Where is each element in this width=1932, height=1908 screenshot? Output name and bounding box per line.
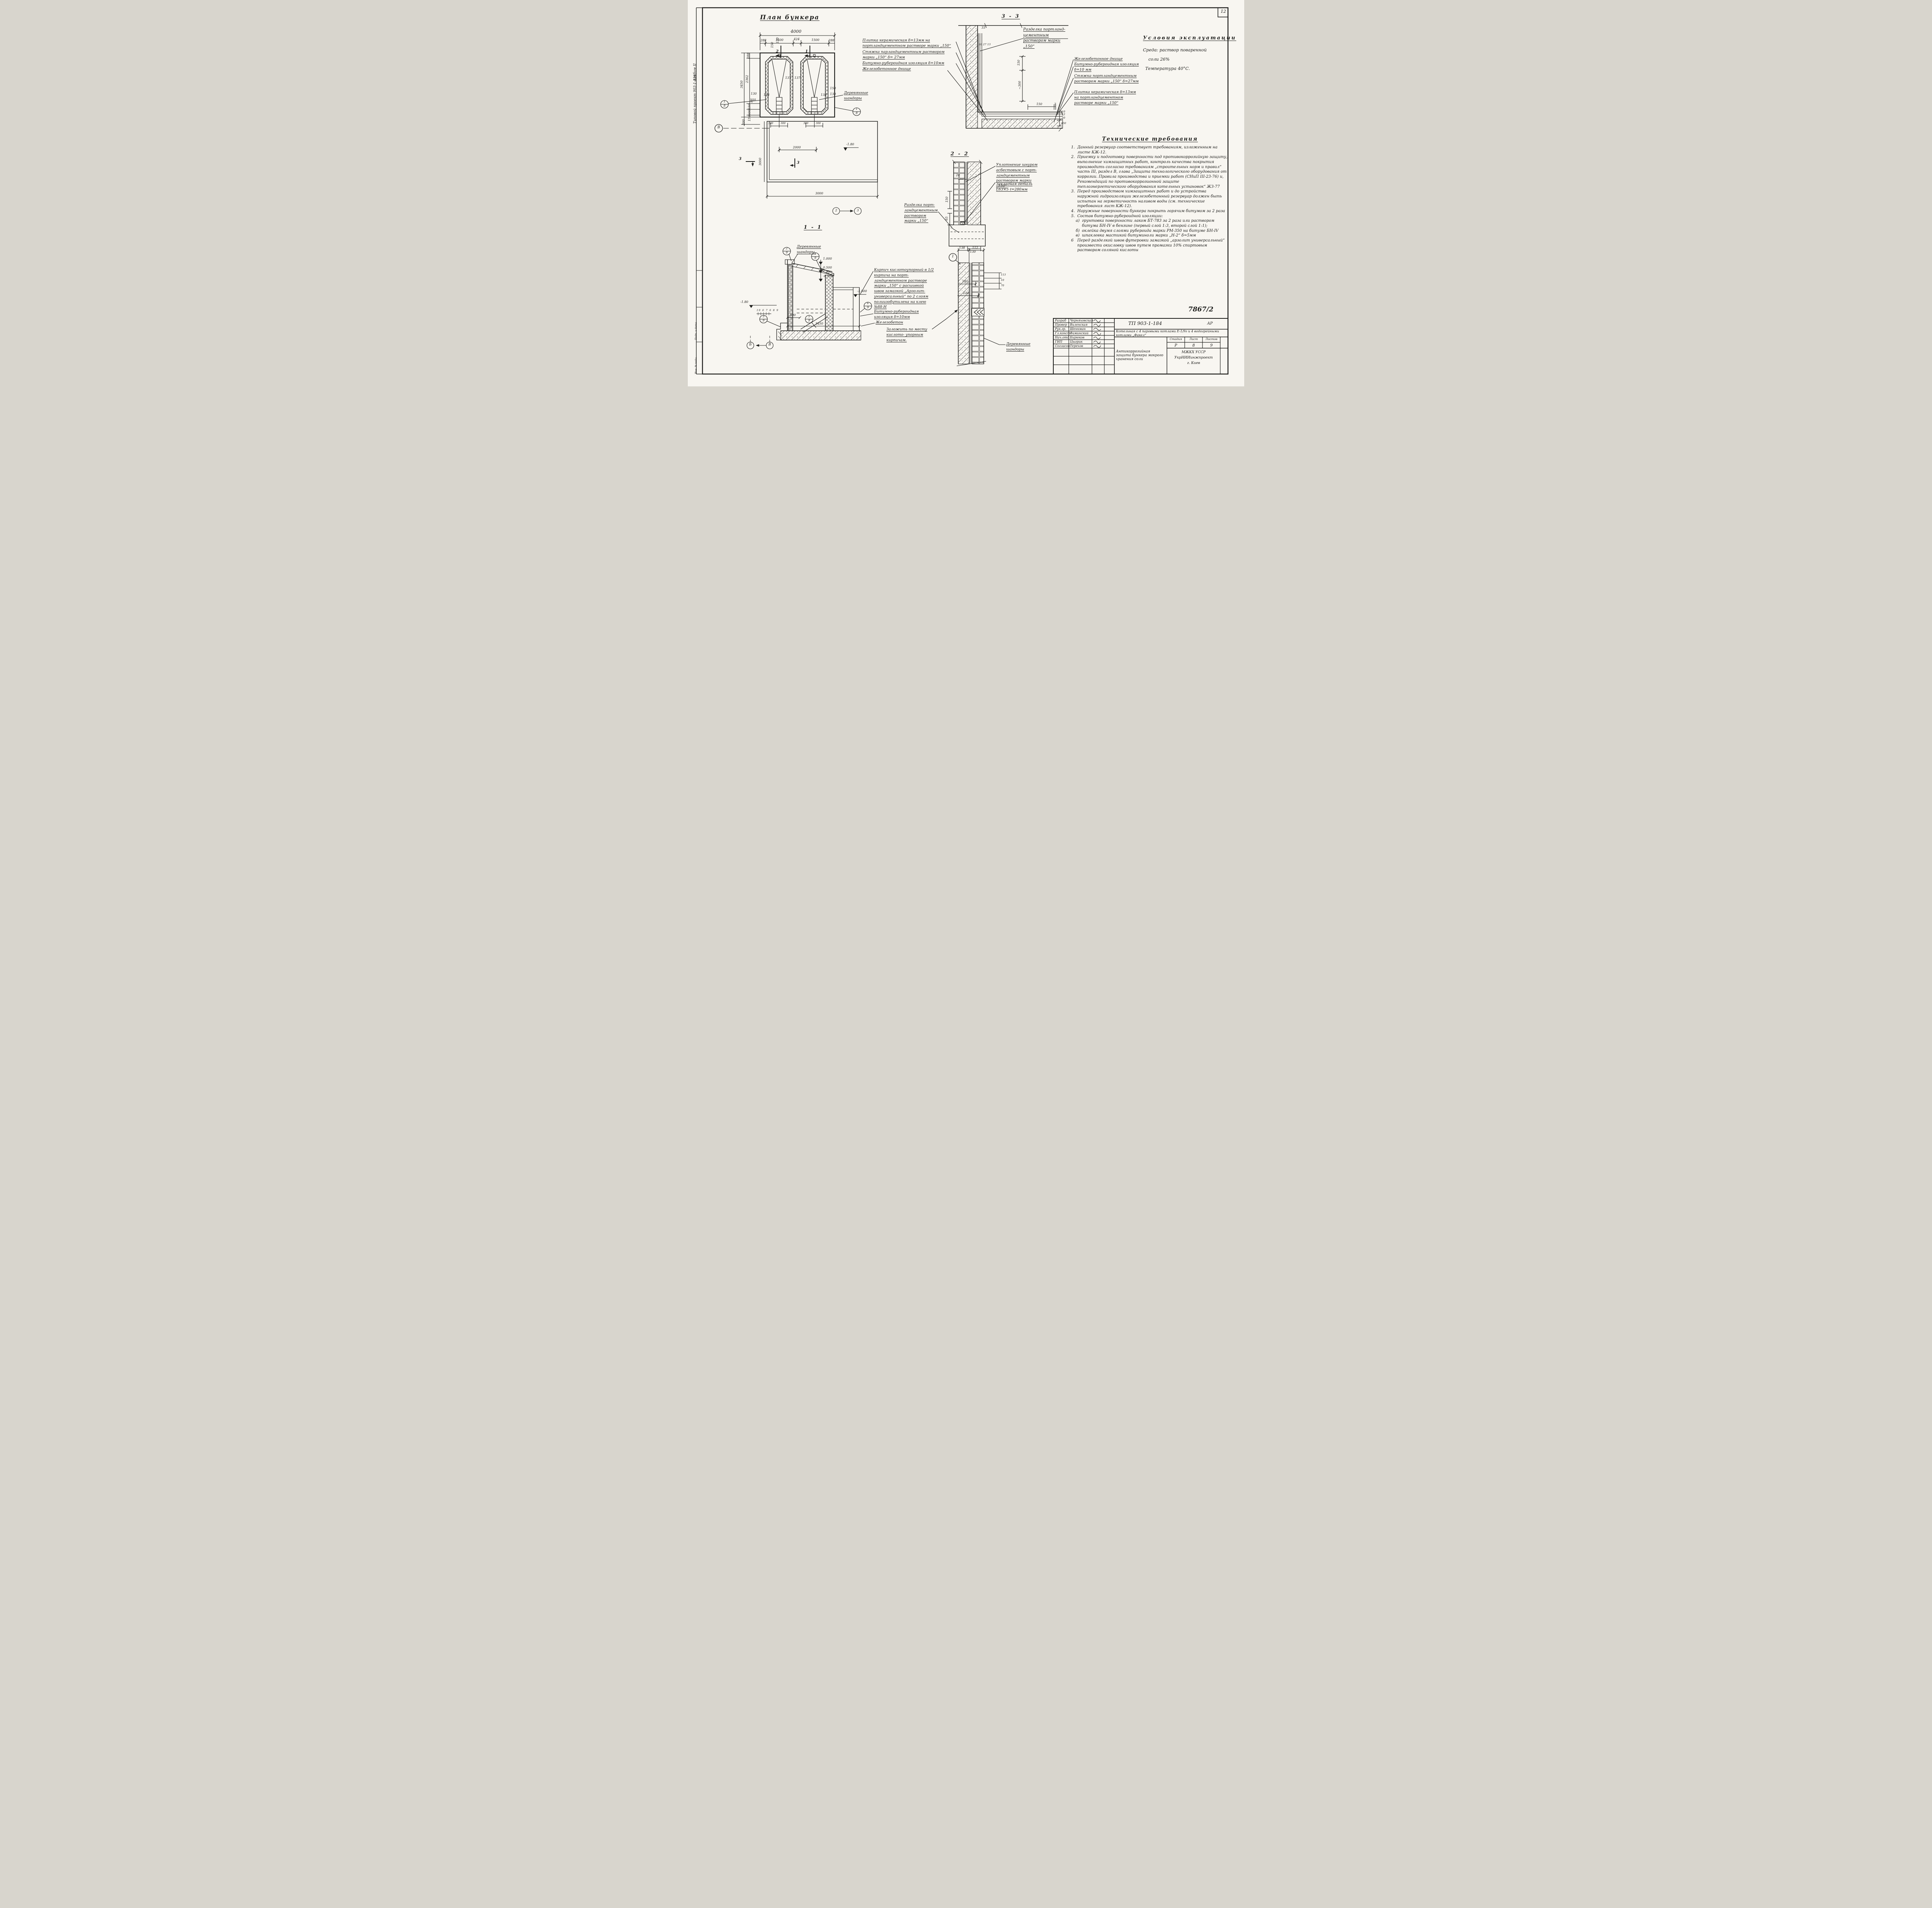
tech-requirement-item: 3.Перед производством химзащитных работ … [1071,189,1229,209]
axis-label: В [767,343,773,347]
conditions-line: соли 26% [1148,57,1170,62]
dim-label: 130 [830,93,836,96]
margin-stamp-date: Подп. и дата [694,322,697,340]
elevation-label: 0.500 [823,266,832,270]
conditions-line: Температура 40°С. [1145,66,1190,71]
item-number: 4. [1071,209,1077,214]
item-text: Данный резервуар соответствует требовани… [1077,145,1229,155]
axis-label: Б [747,343,753,347]
dim-label: 3 [1054,103,1056,106]
dim-label: 300 [816,122,821,125]
dim-label: 300 [781,122,786,125]
dim-label: 180 [962,280,968,284]
material-note: Разделка порт- ландцементным раствором м… [904,202,937,224]
tb-role: Разраб [1055,319,1066,323]
dim-label: 150 [1017,60,1021,66]
tb-name: Терехов [1070,345,1083,348]
detail-bubble-label: 1 [950,255,956,259]
item-number: а) [1076,219,1082,228]
tb-name: Бирюков [1070,336,1084,340]
elevation-label: -1.80 [846,143,854,146]
detail-bubble-den: 8 [721,104,728,107]
tb-project-code: ТП 903-1-184 [1128,321,1162,326]
elevation-label: -1.80 [740,301,748,304]
dim-label: 13 [987,43,991,46]
dim-label: 65 [946,216,949,220]
tb-org-2: УкрНИИинжпроект [1167,356,1220,360]
tb-role: ГИП [1055,340,1062,344]
item-number: 5. [1071,214,1077,219]
item-text: шпаклевка мастикой битуминоли марки „Н-2… [1082,233,1196,238]
margin-album-label: Альбом II [693,63,697,81]
dim-label: 5 [951,226,952,229]
tb-name: Фаминский [1070,332,1088,335]
tb-mark: АР [1207,321,1213,326]
tech-requirements-title: Технические требования [1071,136,1229,142]
material-note: Железобетонное днище [1074,56,1141,62]
tech-requirement-subitem: б)оклейка двумя слоями рубероида марки Р… [1071,229,1229,234]
detail-bubble-num: 1 [854,107,860,111]
dim-label: 27 [983,43,986,46]
material-note: Битумно-рубероидная изоляция δ=10мм [862,61,956,66]
section-mark: 2 [776,49,779,54]
tb-name: Виленская [1070,323,1087,327]
dim-label: 300 [803,122,808,125]
tb-role: Гл.конст [1055,332,1070,335]
elevation-label: -1.500 [857,290,867,293]
drawing-sheet: 12 Типовой проект 903-1-184 Альбом II По… [688,0,1244,386]
elevation-label: 1.000 [823,257,832,261]
tb-org-3: г. Киев [1167,362,1220,366]
ref-bubble-label: 3 [855,209,861,213]
dim-label: 12 [1062,113,1065,116]
material-note: Плитка керамическая δ=13мм на портландце… [862,38,956,49]
tb-sheets-label: Листов [1202,338,1220,341]
section-mark: 3 [739,157,742,161]
sheet-corner-number: 12 [1220,9,1226,14]
dim-label: 500 [790,314,796,317]
detail-bubble-num: 1 [721,100,728,103]
detail-bubble-num: 4 [812,252,818,255]
tech-requirement-item: 4.Наружные поверхности бункера покрыть г… [1071,209,1229,214]
plan-note-shandory: Деревянные шандоры [844,90,876,101]
detail-2-2-drawing [949,248,1005,366]
dim-label: 2362 [746,75,749,83]
tb-role: Провер [1055,323,1067,327]
dim-label: 288 [747,53,750,59]
dim-label: 70 [1001,284,1004,287]
detail-bubble-den: 9 [806,319,812,322]
tb-role: Рук.гр. [1055,328,1066,331]
detail-bubble-num: 2 [784,247,790,250]
material-note: Битумно-рубероидная изоляция δ=10мм [874,309,934,320]
dim-label: 33 [981,26,985,30]
material-note: Разделка портланд-цементным раствором ма… [1023,27,1070,49]
material-note: Битумно-рубероидная изоляция δ=10 мм [1074,62,1141,73]
dim-label: 137 [794,77,800,80]
dim-label: 50 [751,99,753,103]
tech-requirement-item: 5.Состав битумно-рубероидной изоляции: [1071,214,1229,219]
detail-bubble-num: 3 [760,315,767,318]
material-note: Стяжка портландцементным раствором марки… [1074,73,1141,84]
dim-label: 137 [785,77,791,80]
section-2-2-drawing [938,160,995,251]
section-mark: 3 [797,161,799,165]
detail-bubble-den: 9 [784,251,790,254]
dim-label: 130 [970,250,976,254]
item-number: 3. [1071,189,1077,209]
detail-bubble-den: 9 [865,306,871,309]
section-1-1-title: 1 - 1 [804,225,822,230]
section-3-3-title: 3 - 3 [1002,14,1020,19]
tb-object: Котельная с 4 паровыми котлами Е-1/9г и … [1116,330,1226,337]
plan-title: План бункера [760,14,820,21]
material-note: Стяжка парландцементным раствором марки … [862,49,956,60]
tb-role: Согласов [1055,345,1070,348]
dim-label: 3450 [815,322,823,326]
detail-bubble-num: 5 [806,315,812,318]
tb-name: Цыгрик [1070,340,1083,344]
tb-stage-label: Стадия [1167,338,1185,341]
tb-sheet-title: Антикоррозийная защита бункера мокрого х… [1116,350,1165,362]
dim-label: 288 [828,39,834,43]
item-text: Приемку и подготовку поверхности под про… [1077,155,1229,189]
material-note: Заложить по месту кислото- упорным кирпи… [886,327,929,343]
margin-stamp-inv: Инв. № подл. [694,357,697,374]
detail-bubble-den: 9 [760,319,767,322]
dim-label: 150 [771,42,774,48]
dim-label: 10 [1001,279,1004,282]
tech-requirement-subitem: в)шпаклевка мастикой битуминоли марки „Н… [1071,233,1229,238]
tech-requirement-subitem: а)грунтовка поверхности лаком БТ-783 за … [1071,219,1229,228]
item-text: грунтовка поверхности лаком БТ-783 за 2 … [1082,219,1229,228]
dim-label: 50 [1062,117,1065,119]
dim-label: 150 [946,197,949,202]
conditions-line: Среда: раствор поваренной [1143,48,1207,53]
dim-label: 4000 [791,29,801,34]
material-note: Железобетон [876,320,936,325]
item-text: Перед разделкой швов футеровки замазкой … [1077,238,1229,253]
item-number: б) [1076,229,1082,234]
item-number: 2. [1071,155,1077,189]
detail-bubble-den: 8 [854,112,860,115]
elevation-label: -0.150 [823,275,833,278]
dim-label: 150 [1036,103,1042,106]
dim-label: 300 [768,122,773,125]
dim-label: 130 [776,37,780,43]
material-note: Железобетонное днище [862,66,956,72]
dim-label: 3450 [740,80,744,88]
doc-number: 7867/2 [1188,306,1213,313]
tb-sheets-value: 9 [1202,344,1220,348]
dim-label: 288 [760,39,766,43]
dim-label: 10 [979,43,982,46]
dim-label: 138 [764,94,769,97]
material-note: Плитка керамическая δ=13мм на портландце… [1074,90,1141,105]
tech-requirement-item: 1.Данный резервуар соответствует требова… [1071,145,1229,155]
item-text: Наружные поверхности бункера покрыть гор… [1077,209,1225,214]
dim-label: 3000 [759,158,762,165]
tb-sheet-label: Лист [1185,338,1202,341]
dim-label: 150 [1061,122,1066,125]
section-mark: 1 [805,49,808,54]
item-text: Состав битумно-рубероидной изоляции: [1077,214,1163,219]
dim-label: 230 [963,292,969,295]
tech-requirements: Технические требования 1.Данный резервуа… [1071,136,1229,253]
section-2-2-title: 2 - 2 [951,151,969,157]
tb-org-1: МЖКХ УССР [1167,351,1220,355]
dim-label: 113 [1001,274,1006,276]
dim-label: 150 [830,87,836,90]
material-note: Кирпич кислотоупорный в 1/2 кирпича на п… [874,267,934,310]
plan-drawing [715,32,879,214]
tech-requirement-item: 2.Приемку и подготовку поверхности под п… [1071,155,1229,189]
item-number: в) [1076,233,1082,238]
detail-bubble-den: 9 [812,257,818,260]
item-number: 1. [1071,145,1077,155]
dim-label: 200 [742,119,746,125]
dim-label: 20 [956,174,960,177]
margin-project-label: Типовой проект 903-1-184 [693,74,697,124]
dim-label: 150 [748,116,752,121]
dim-label: 150 [748,104,752,110]
tb-name: Черняховская [1070,319,1093,323]
dim-label: 3000 [815,192,823,196]
detail-bubble-num: 6 [865,302,871,305]
tb-sheet-value: 8 [1185,344,1202,348]
dim-label: ~300 [1019,81,1022,89]
dim-label: 1500 [811,39,819,42]
item-text: оклейка двумя слоями рубероида марки РМ-… [1082,229,1218,234]
dim-label: 130 [751,92,757,96]
dim-label: 2000 [793,146,801,150]
item-text: Перед производством химзащитных работ и … [1077,189,1229,209]
tech-requirement-item: 6Перед разделкой швов футеровки замазкой… [1071,238,1229,253]
axis-label: В [716,126,722,130]
item-number: 6 [1071,238,1077,253]
conditions-title: Условия эксплуатации [1143,36,1236,41]
dim-label: 600 [748,110,752,116]
dim-label: 138 [821,94,827,97]
dim-label: 112 [972,247,978,250]
tb-stage-value: Р [1167,344,1185,348]
tb-name: Шенкман [1070,328,1086,331]
position-marks: 10 6 7 6 8 9 [757,309,779,312]
material-note: Закладная деталь L63×5 ℓ=280мм [996,182,1043,192]
ref-bubble-label: 2 [833,209,839,213]
detail-note-shandory: Деревянные шандоры [1006,342,1041,352]
tb-role: Нач.отд [1055,336,1069,340]
dim-label: 424 [794,38,799,41]
dim-label: 138 [959,247,965,250]
